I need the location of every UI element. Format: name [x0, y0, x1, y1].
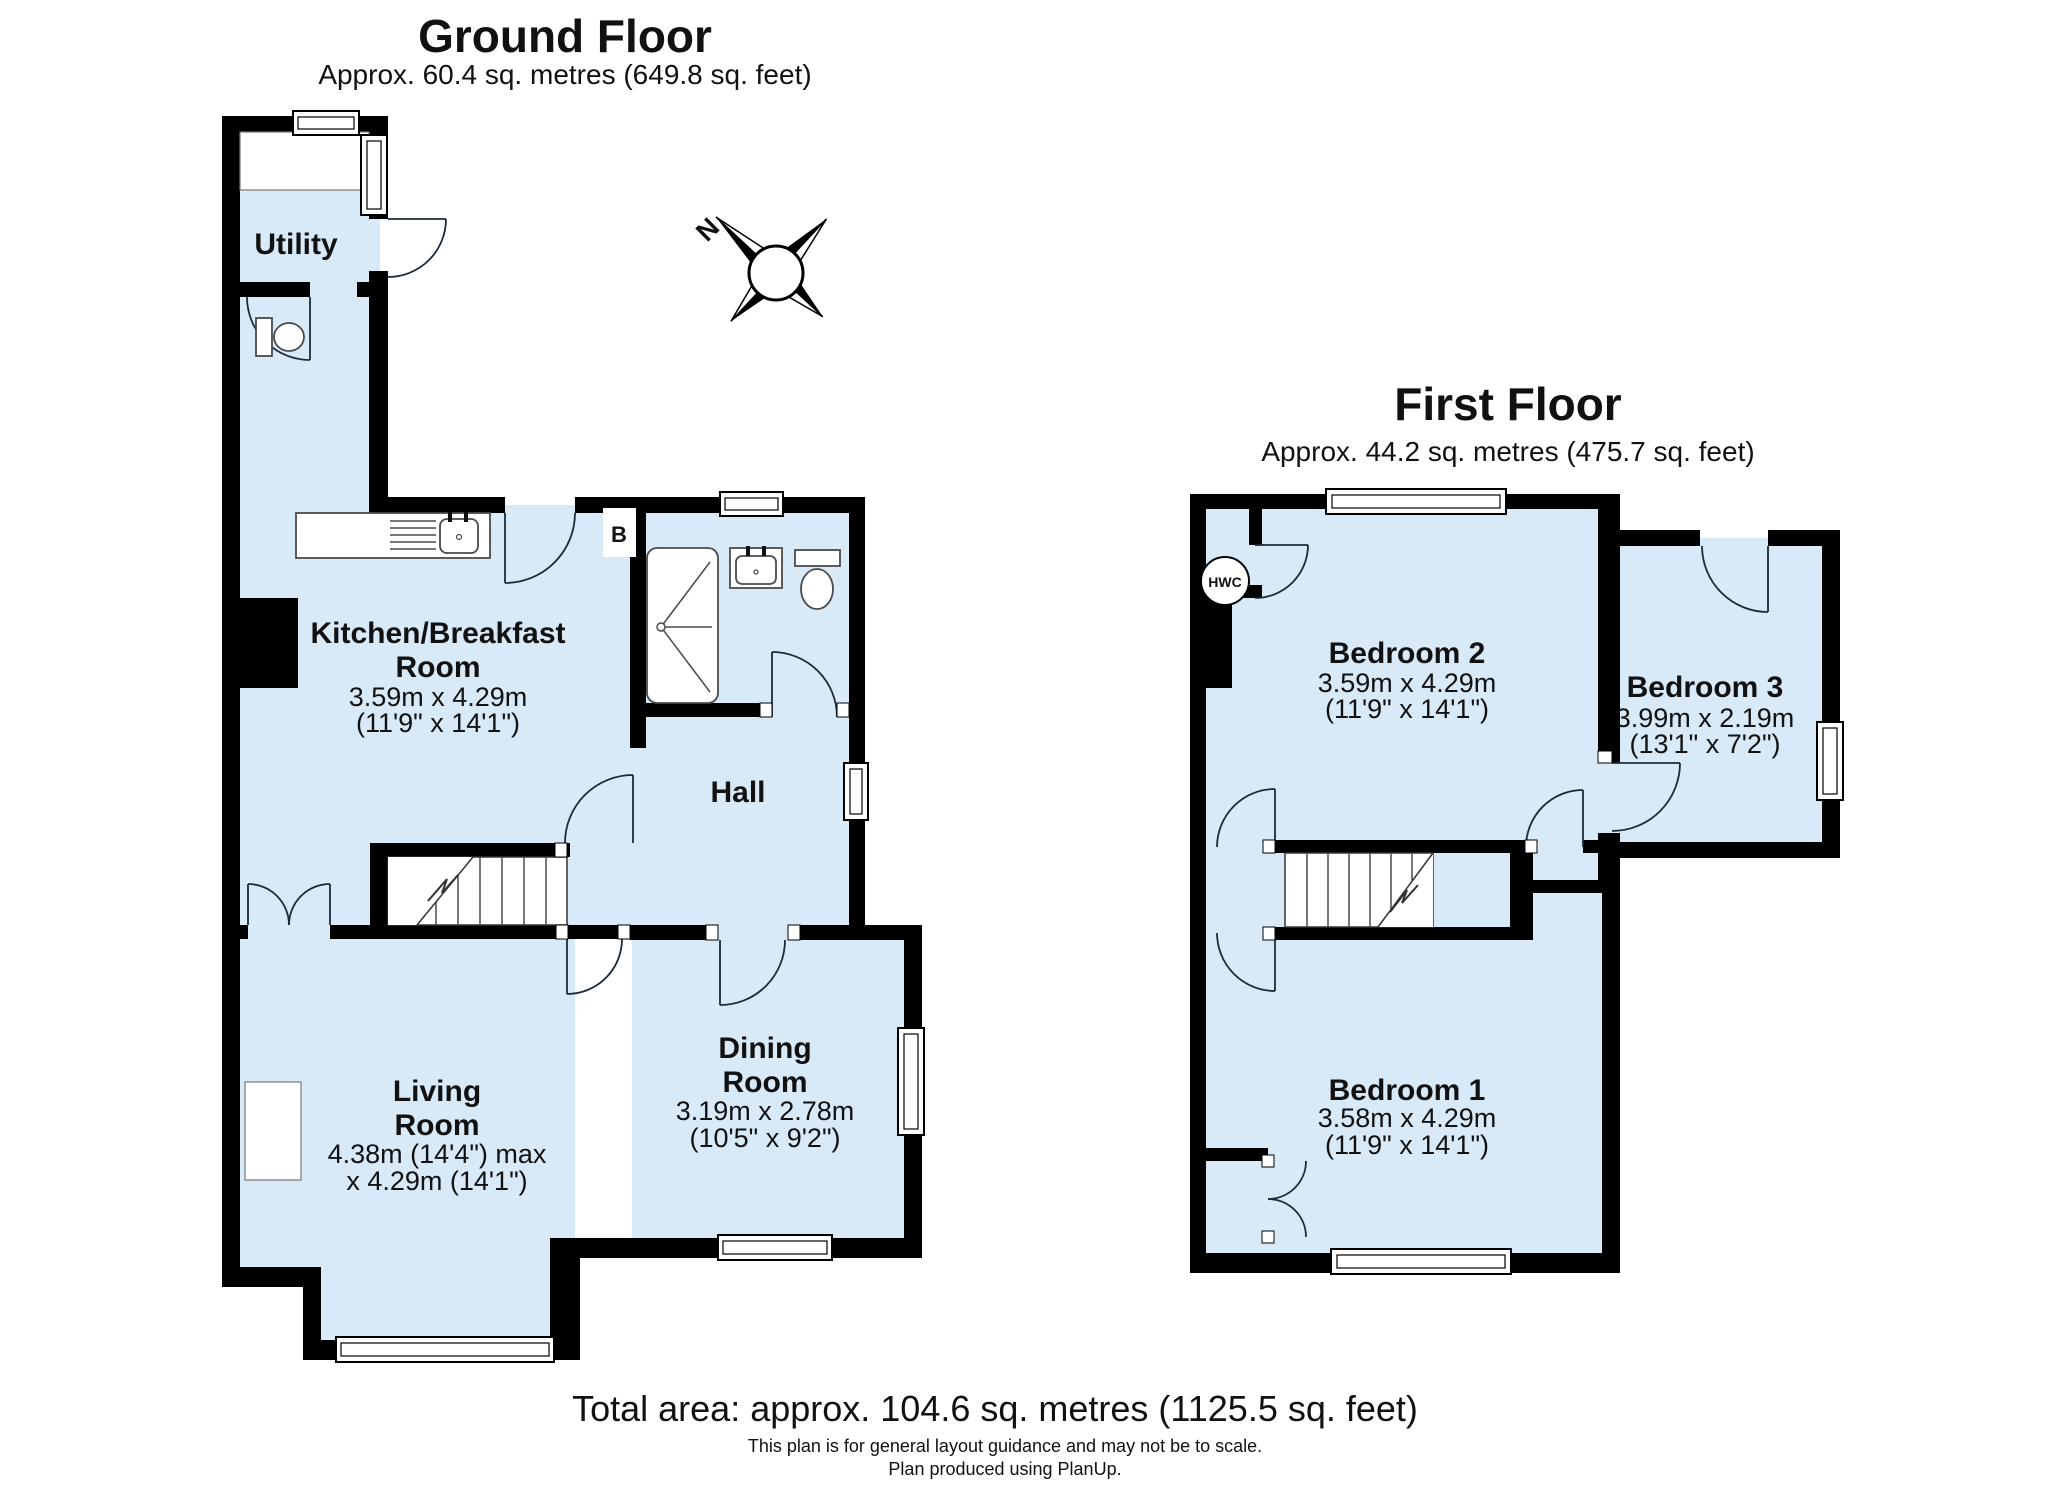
- wall: [222, 116, 240, 1287]
- ground-floor-area: Approx. 60.4 sq. metres (649.8 sq. feet): [318, 59, 811, 90]
- window: [336, 1337, 554, 1362]
- disclaimer-text: This plan is for general layout guidance…: [748, 1436, 1262, 1456]
- door-jamb: [618, 925, 630, 939]
- window: [361, 135, 387, 215]
- wall: [330, 925, 630, 939]
- wall: [240, 282, 310, 297]
- wall: [830, 1238, 922, 1258]
- utility-label: Utility: [254, 228, 338, 261]
- wall: [1604, 842, 1840, 858]
- bedroom2-dims-imperial: (11'9" x 14'1"): [1325, 694, 1489, 724]
- door-jamb: [837, 703, 849, 717]
- wall: [1275, 840, 1537, 853]
- door-jamb: [1525, 840, 1537, 853]
- hwc-label: HWC: [1208, 574, 1241, 590]
- wall: [357, 282, 369, 297]
- bedroom3-label: Bedroom 3: [1627, 671, 1784, 704]
- living-room-dims-imperial: x 4.29m (14'1"): [346, 1166, 527, 1196]
- wall: [849, 820, 865, 940]
- wall: [1249, 509, 1262, 545]
- wall: [369, 271, 388, 511]
- total-area-text: Total area: approx. 104.6 sq. metres (11…: [572, 1388, 1418, 1429]
- window: [844, 763, 868, 820]
- wall: [788, 925, 922, 940]
- hall-label: Hall: [710, 776, 765, 809]
- door-jamb: [706, 925, 718, 940]
- basin-icon: [730, 546, 782, 588]
- compass-icon: N: [671, 163, 873, 365]
- wall: [1190, 1253, 1335, 1273]
- ground-floor-title: Ground Floor: [418, 10, 712, 62]
- door-jamb: [556, 925, 568, 939]
- compass-north-label: N: [690, 212, 725, 247]
- wall: [370, 843, 388, 939]
- staircase-ground: [388, 857, 567, 925]
- window: [293, 111, 359, 135]
- wall: [370, 843, 570, 857]
- wall: [630, 925, 718, 940]
- window: [1817, 722, 1843, 800]
- kitchen-label-2: Room: [396, 651, 481, 684]
- first-floor-title: First Floor: [1394, 378, 1622, 430]
- wall: [1190, 494, 1206, 1273]
- wall: [783, 497, 865, 513]
- wall: [1533, 880, 1598, 893]
- door: [388, 219, 446, 277]
- window: [1326, 489, 1506, 514]
- wall: [1275, 927, 1533, 940]
- chimney-breast: [240, 598, 298, 688]
- door-jamb: [788, 925, 800, 940]
- dining-room-label-2: Room: [723, 1066, 808, 1099]
- door-jamb: [555, 843, 567, 857]
- kitchen-sink-icon: [296, 512, 490, 558]
- dining-room-dims-imperial: (10'5" x 9'2"): [689, 1123, 840, 1153]
- window: [898, 1028, 924, 1135]
- living-room-dims-metric: 4.38m (14'4") max: [328, 1139, 547, 1169]
- wall: [580, 1238, 730, 1258]
- first-floor-plan: HWC First Floor Approx. 44.2 sq. metres …: [1190, 378, 1843, 1274]
- wall: [575, 497, 720, 513]
- boiler-label: B: [611, 522, 627, 547]
- wall: [904, 1135, 922, 1255]
- shower-icon: [647, 548, 718, 703]
- kitchen-dims-imperial: (11'9" x 14'1"): [356, 708, 520, 738]
- living-room-label: Living: [393, 1075, 481, 1108]
- wall: [1206, 1148, 1268, 1161]
- wall: [1510, 853, 1533, 927]
- ground-floor-plan: B Ground Floor Approx. 60.4 sq. metres (…: [222, 10, 924, 1362]
- wall: [240, 925, 248, 939]
- bedroom1-dims-imperial: (11'9" x 14'1"): [1325, 1130, 1489, 1160]
- wall: [1822, 530, 1840, 722]
- bay-window-floor: [312, 1260, 562, 1348]
- floorplan-canvas: B Ground Floor Approx. 60.4 sq. metres (…: [0, 0, 2048, 1489]
- window: [718, 1235, 832, 1260]
- utility-worktop: [240, 132, 369, 190]
- door-jamb: [1598, 751, 1612, 763]
- window: [1331, 1249, 1511, 1274]
- door-jamb: [760, 703, 772, 717]
- wall: [630, 703, 772, 717]
- credit-text: Plan produced using PlanUp.: [888, 1459, 1121, 1479]
- bedroom3-dims-imperial: (13'1" x 7'2"): [1629, 729, 1780, 759]
- bedroom2-label: Bedroom 2: [1329, 637, 1486, 670]
- wall: [1190, 494, 1330, 509]
- bedroom1-dims-metric: 3.58m x 4.29m: [1318, 1103, 1497, 1133]
- first-floor-area: Approx. 44.2 sq. metres (475.7 sq. feet): [1261, 436, 1754, 467]
- wall: [1602, 893, 1620, 1273]
- wall: [849, 513, 865, 763]
- door-jamb: [1263, 927, 1275, 940]
- staircase-first: [1285, 853, 1433, 927]
- wall: [1583, 840, 1598, 853]
- wall: [369, 497, 505, 513]
- dining-room-dims-metric: 3.19m x 2.78m: [676, 1096, 855, 1126]
- window: [720, 492, 783, 516]
- living-room-label-2: Room: [395, 1109, 480, 1142]
- dining-room-label: Dining: [718, 1032, 811, 1065]
- footer: Total area: approx. 104.6 sq. metres (11…: [572, 1388, 1418, 1479]
- wall: [1598, 833, 1620, 893]
- wall: [904, 925, 922, 1028]
- kitchen-label: Kitchen/Breakfast: [310, 617, 565, 650]
- door-jamb: [1263, 840, 1275, 853]
- living-room-fireplace: [245, 1082, 301, 1180]
- door: [567, 939, 622, 994]
